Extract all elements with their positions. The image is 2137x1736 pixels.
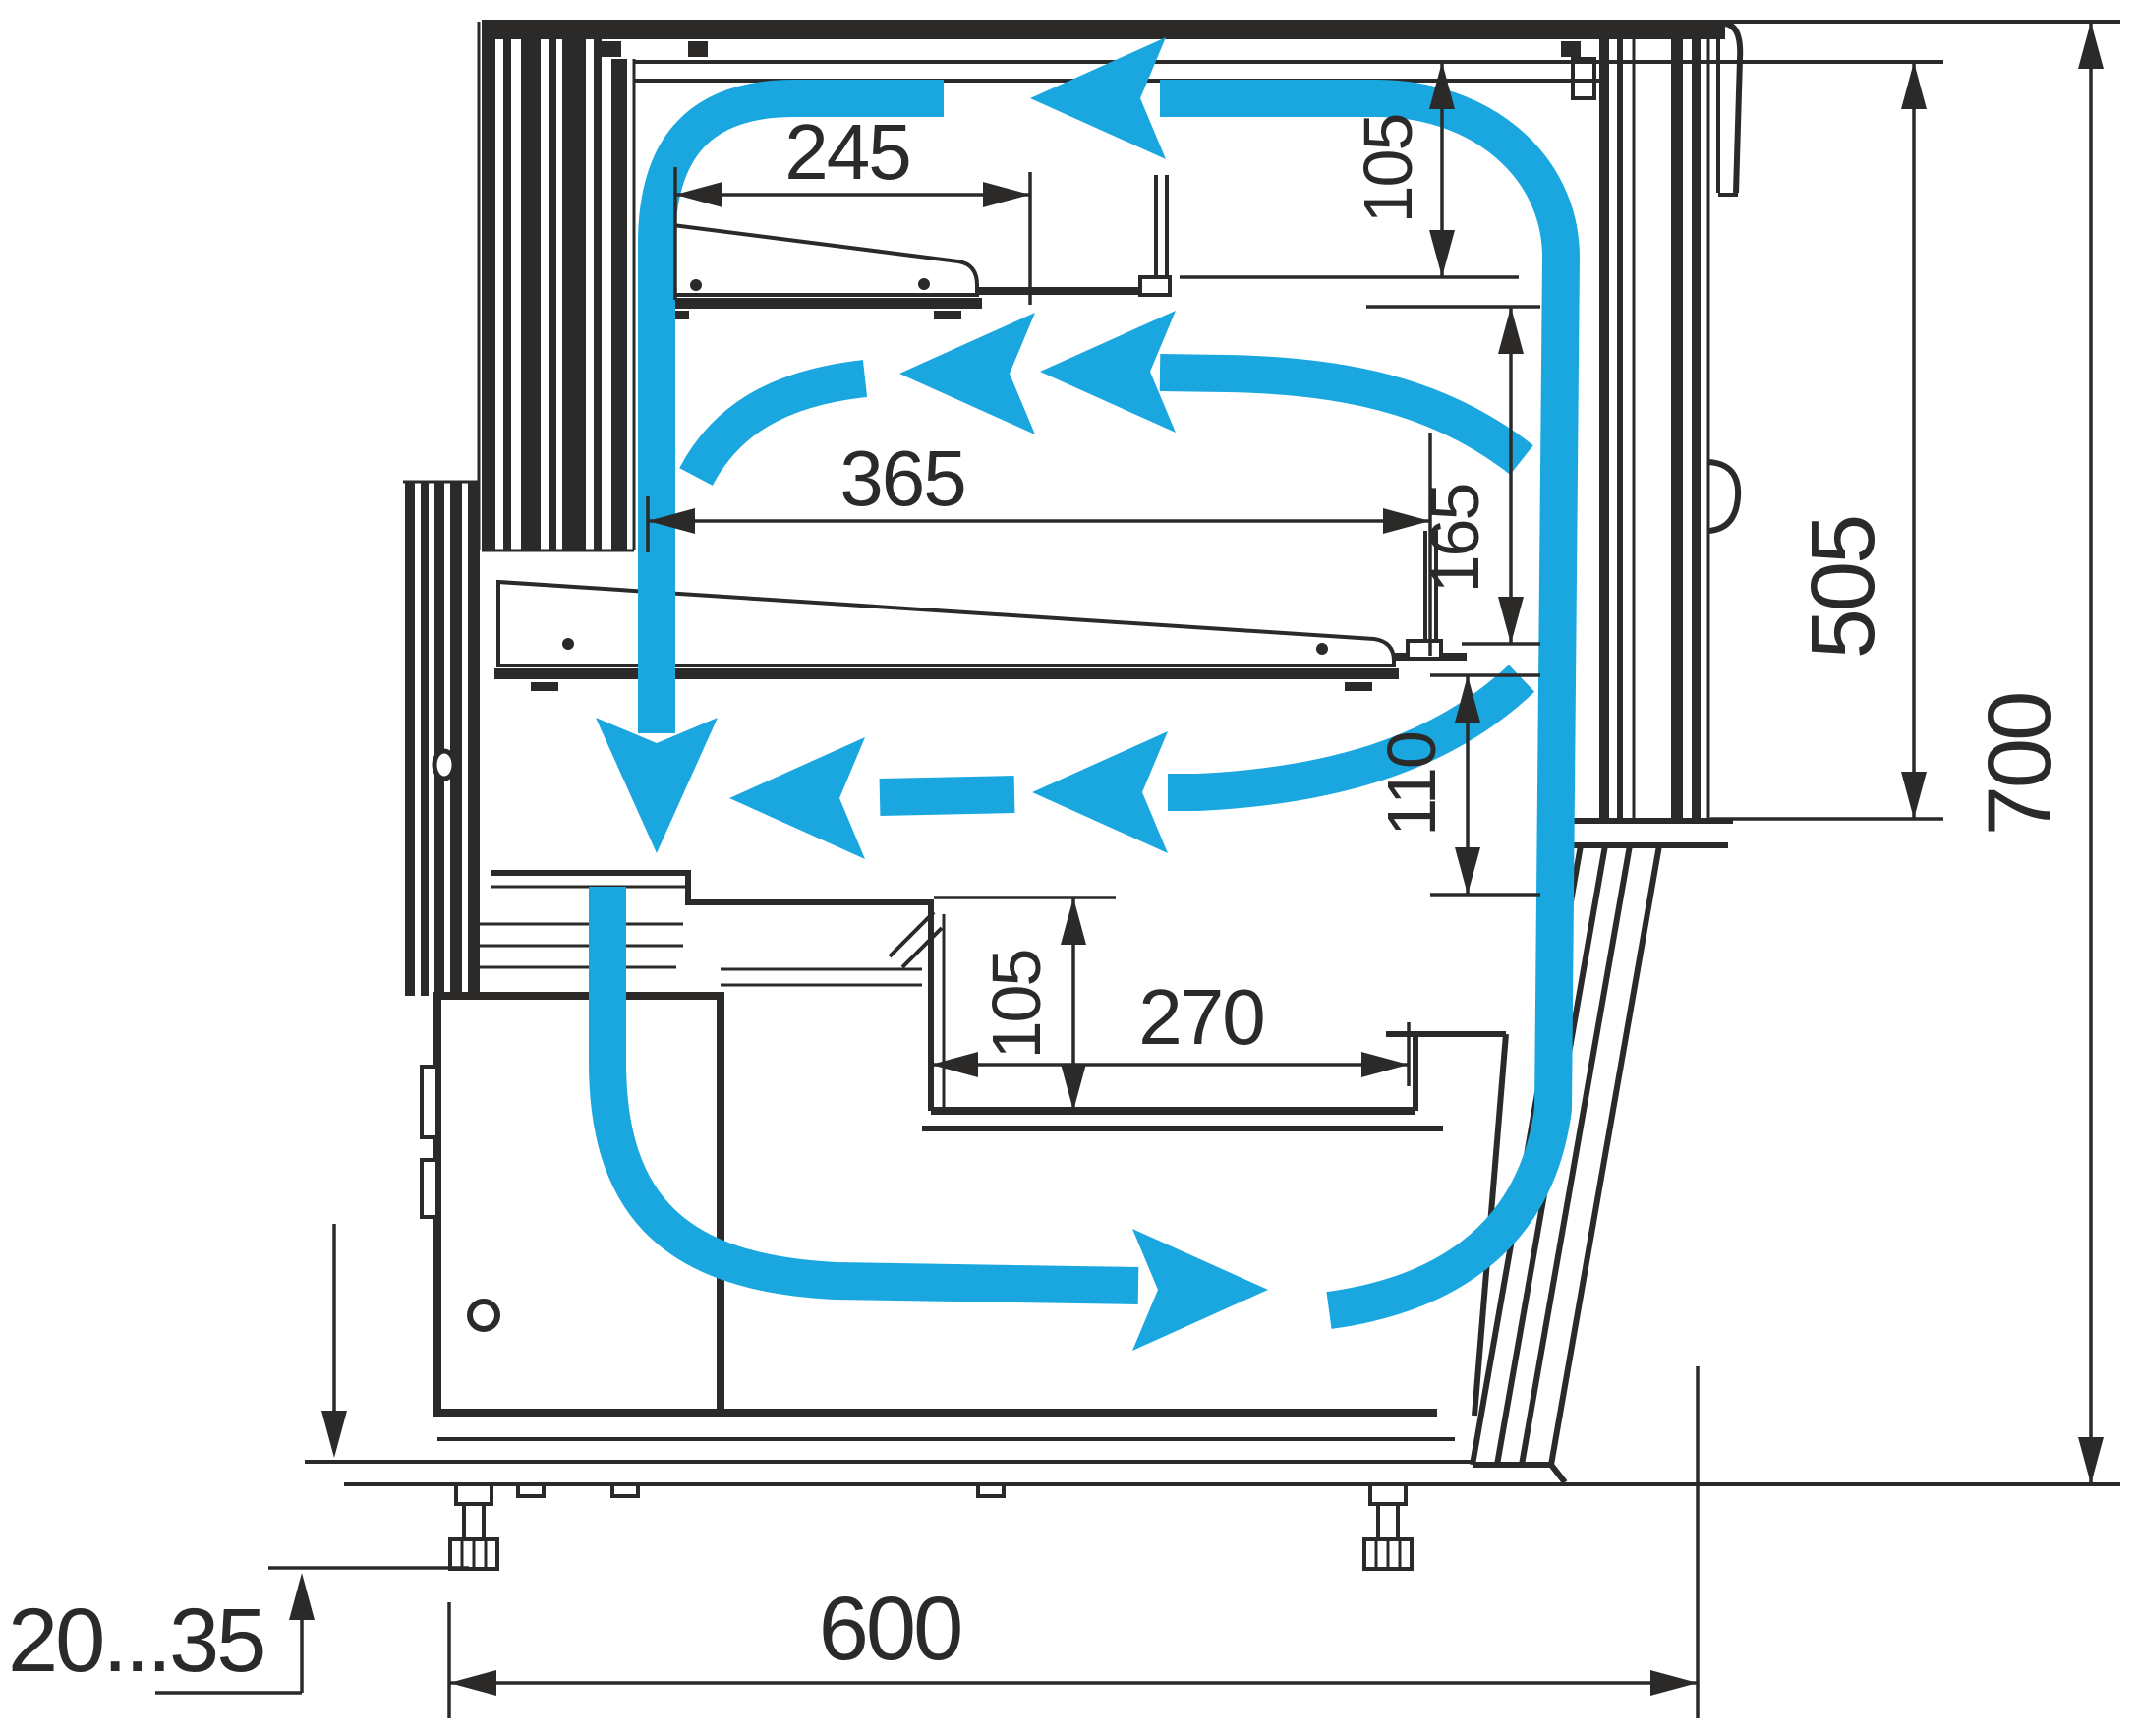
- dimension-label-20-35: 20...35: [8, 1591, 263, 1691]
- dimension-label-105-top: 105: [1350, 115, 1426, 224]
- airflow-diagram: 245 105 365 165 110: [0, 0, 2137, 1736]
- adjustable-foot-right: [1364, 1484, 1412, 1569]
- airflow-arrow-mid-lower2-icon: [729, 737, 865, 859]
- adjustable-foot-left: [450, 1484, 497, 1569]
- airflow-mid-upper-stream: [1160, 373, 1522, 460]
- dimension-label-105-well: 105: [978, 951, 1055, 1060]
- dimension-label-110: 110: [1373, 732, 1450, 837]
- dimension-label-270: 270: [1138, 973, 1263, 1061]
- airflow-arrow-right-icon: [1132, 1229, 1268, 1351]
- airflow-arrow-mid-lower-icon: [1032, 731, 1168, 853]
- dimension-label-700: 700: [1970, 694, 2070, 837]
- airflow-arrow-mid-upper2-icon: [899, 313, 1035, 434]
- dimension-105-well: 105: [934, 897, 1116, 1111]
- dimension-20-35: 20...35: [8, 1224, 469, 1693]
- insulation-lines: [470, 924, 922, 985]
- front-glass: [1558, 39, 1738, 845]
- airflow-mid-lower-return: [880, 794, 1014, 797]
- dimension-label-245: 245: [784, 108, 909, 196]
- technical-drawing: 245 105 365 165 110: [0, 0, 2137, 1736]
- dimension-700: 700: [1970, 22, 2104, 1484]
- airflow-arrow-top-left-icon: [1030, 37, 1166, 159]
- dimensions: 245 105 365 165 110: [8, 22, 2104, 1718]
- dimension-label-505: 505: [1793, 517, 1893, 660]
- glass-handle: [1708, 462, 1738, 531]
- dimension-label-365: 365: [839, 434, 964, 522]
- dimension-505: 505: [1710, 62, 1943, 819]
- dimension-label-165: 165: [1416, 485, 1493, 594]
- airflow-arrow-mid-upper-icon: [1040, 311, 1176, 433]
- dimension-600: 600: [449, 1366, 1698, 1718]
- airflow-arrow-down-icon: [596, 718, 718, 853]
- machine-compartment: [422, 996, 721, 1413]
- rear-wall: [403, 22, 634, 996]
- dimension-label-600: 600: [819, 1579, 961, 1679]
- dimension-165: 165: [1366, 307, 1540, 644]
- base: [305, 1413, 2120, 1496]
